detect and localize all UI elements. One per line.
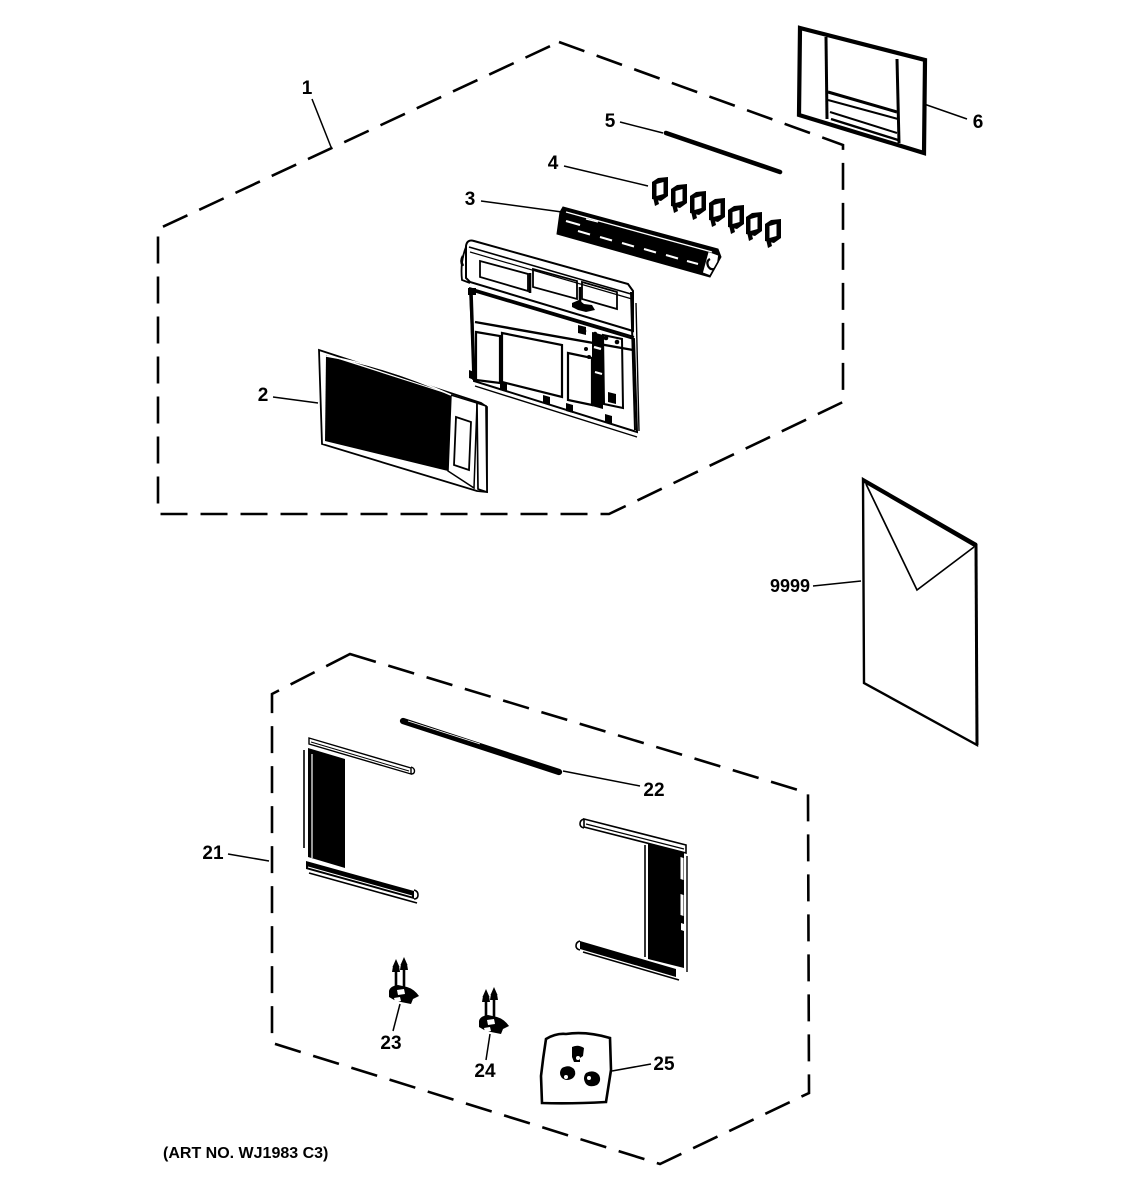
svg-text:4: 4 [548, 153, 559, 174]
svg-text:5: 5 [605, 111, 616, 132]
svg-text:23: 23 [380, 1033, 401, 1054]
svg-text:24: 24 [474, 1061, 496, 1082]
svg-text:21: 21 [202, 843, 224, 864]
svg-text:9999: 9999 [770, 576, 810, 596]
svg-text:(ART NO. WJ1983 C3): (ART NO. WJ1983 C3) [163, 1145, 328, 1162]
svg-text:1: 1 [302, 78, 313, 99]
svg-text:25: 25 [653, 1054, 675, 1075]
svg-text:2: 2 [258, 385, 269, 406]
svg-text:6: 6 [973, 112, 984, 133]
svg-text:3: 3 [465, 189, 476, 210]
svg-text:22: 22 [643, 780, 664, 801]
